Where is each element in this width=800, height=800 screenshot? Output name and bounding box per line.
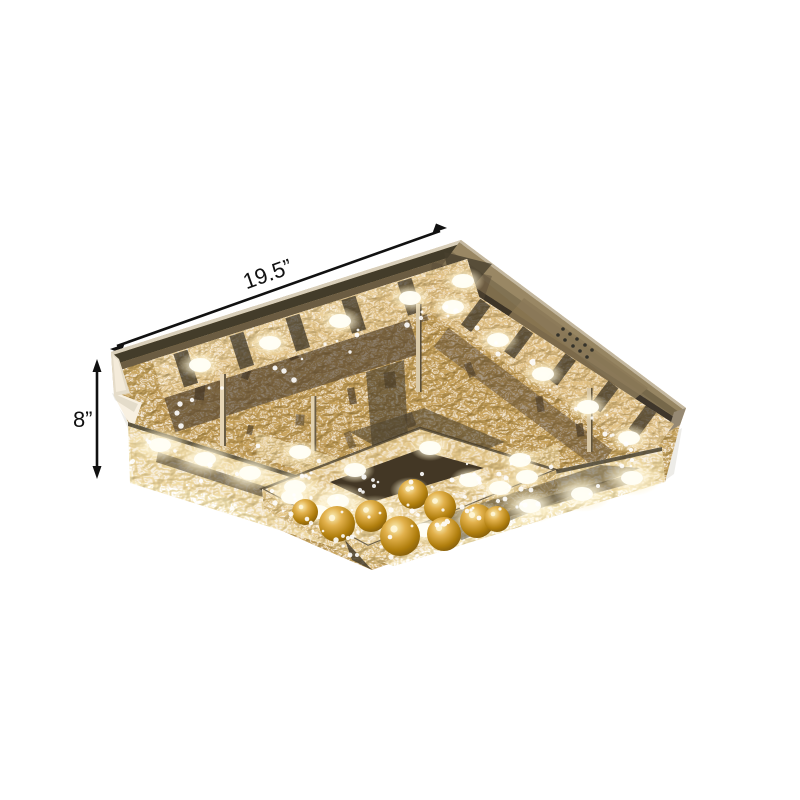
svg-text:8”: 8” (73, 407, 93, 432)
